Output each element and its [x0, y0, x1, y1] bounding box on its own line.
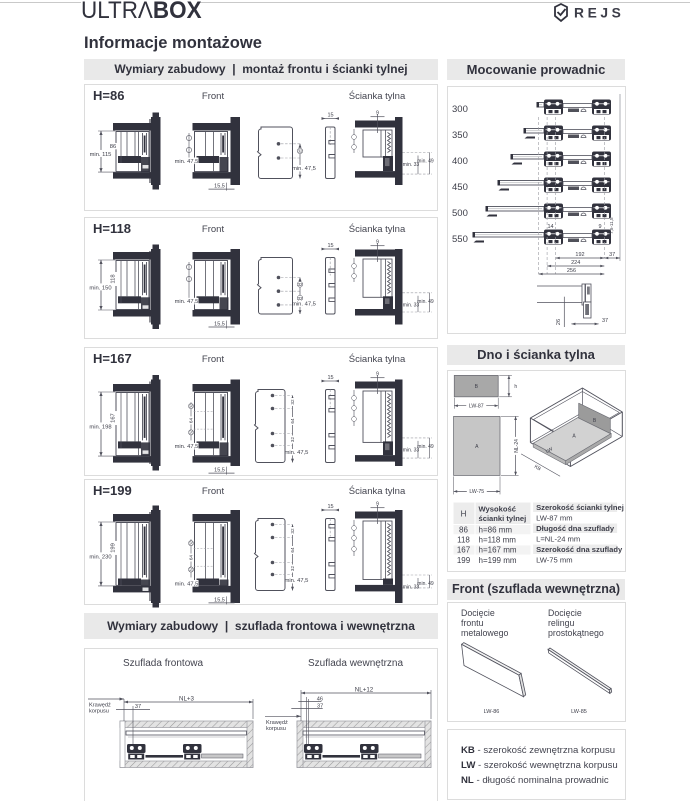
svg-text:37: 37	[609, 252, 615, 258]
svg-text:h: h	[514, 384, 517, 390]
svg-text:h=167 mm: h=167 mm	[479, 546, 517, 555]
svg-text:min. 33: min. 33	[403, 162, 420, 168]
svg-text:64: 64	[189, 418, 194, 424]
svg-text:min. 47,5: min. 47,5	[285, 578, 309, 584]
svg-text:37: 37	[602, 318, 608, 324]
svg-text:199: 199	[111, 543, 117, 553]
svg-text:15,5: 15,5	[214, 468, 225, 474]
svg-text:167: 167	[111, 413, 117, 423]
svg-text:15: 15	[327, 375, 333, 381]
svg-text:korpusu: korpusu	[89, 709, 109, 715]
svg-text:32: 32	[189, 567, 194, 572]
svg-text:9: 9	[376, 502, 379, 508]
svg-text:Szerokość ścianki tylnej: Szerokość ścianki tylnej	[536, 503, 624, 512]
svg-text:Wysokość: Wysokość	[479, 505, 516, 514]
svg-text:min. 47,5: min. 47,5	[175, 444, 199, 450]
svg-text:min. 150: min. 150	[89, 285, 111, 291]
svg-text:min. 115: min. 115	[90, 152, 112, 158]
svg-text:64: 64	[290, 547, 295, 553]
svg-text:LW-86: LW-86	[484, 709, 500, 715]
svg-text:min. 47,5: min. 47,5	[175, 581, 199, 587]
svg-text:NL-24: NL-24	[514, 439, 520, 453]
svg-text:118: 118	[457, 536, 470, 545]
svg-text:LW-75: LW-75	[469, 489, 484, 495]
svg-text:350: 350	[452, 130, 468, 141]
svg-text:min. 33: min. 33	[403, 447, 420, 453]
svg-text:min. 230: min. 230	[89, 554, 111, 560]
svg-text:64: 64	[290, 418, 295, 424]
svg-text:37: 37	[135, 704, 141, 710]
svg-text:32: 32	[189, 403, 194, 408]
svg-text:min. 47,5: min. 47,5	[175, 159, 199, 165]
svg-text:86: 86	[459, 525, 468, 534]
svg-text:min. 49: min. 49	[417, 159, 434, 165]
svg-text:min. 33: min. 33	[403, 585, 420, 591]
svg-text:min. 47,5: min. 47,5	[292, 166, 316, 172]
svg-text:300: 300	[452, 104, 468, 115]
svg-text:min. 49: min. 49	[417, 581, 434, 587]
svg-text:64: 64	[189, 555, 194, 561]
svg-text:32: 32	[189, 429, 194, 434]
svg-text:Długość dna szuflady: Długość dna szuflady	[536, 524, 615, 533]
svg-text:L=NL-24 mm: L=NL-24 mm	[536, 535, 580, 544]
svg-text:37: 37	[317, 703, 323, 709]
svg-text:15,5: 15,5	[214, 184, 225, 190]
svg-text:32: 32	[189, 540, 194, 545]
svg-text:7,5-11,5: 7,5-11,5	[609, 217, 614, 234]
svg-text:224: 224	[571, 260, 580, 266]
svg-text:H: H	[461, 510, 467, 519]
svg-text:9: 9	[376, 240, 379, 246]
svg-text:32: 32	[297, 149, 303, 154]
svg-text:min. 198: min. 198	[89, 424, 111, 430]
svg-text:LW-87 mm: LW-87 mm	[536, 514, 572, 523]
svg-text:32: 32	[290, 437, 295, 443]
svg-text:15: 15	[327, 243, 333, 249]
svg-text:h=118 mm: h=118 mm	[479, 536, 517, 545]
svg-text:h=86 mm: h=86 mm	[479, 525, 513, 534]
svg-text:32: 32	[290, 566, 295, 572]
svg-text:32: 32	[290, 528, 295, 534]
svg-text:9: 9	[376, 111, 379, 117]
svg-text:14: 14	[547, 224, 553, 230]
svg-text:h=199 mm: h=199 mm	[479, 556, 517, 565]
svg-text:550: 550	[452, 234, 468, 245]
svg-text:192: 192	[575, 252, 584, 258]
svg-text:korpusu: korpusu	[266, 726, 286, 732]
svg-text:15: 15	[327, 113, 333, 119]
svg-text:min. 49: min. 49	[417, 299, 434, 305]
svg-text:min. 33: min. 33	[403, 302, 420, 308]
svg-text:NL+12: NL+12	[355, 687, 374, 694]
svg-text:86: 86	[110, 144, 116, 150]
svg-text:min. 47,5: min. 47,5	[175, 299, 199, 305]
svg-text:26: 26	[556, 319, 562, 325]
svg-text:15,5: 15,5	[214, 322, 225, 328]
svg-text:ścianki tylnej: ścianki tylnej	[479, 514, 527, 523]
svg-text:199: 199	[457, 556, 471, 565]
svg-text:NL+3: NL+3	[179, 696, 195, 703]
svg-text:LW-75 mm: LW-75 mm	[536, 556, 572, 565]
svg-text:32: 32	[290, 399, 295, 405]
svg-text:15,5: 15,5	[214, 597, 225, 603]
svg-text:167: 167	[457, 546, 471, 555]
svg-text:min. 49: min. 49	[417, 444, 434, 450]
svg-text:32: 32	[297, 296, 303, 301]
svg-text:min. 47,5: min. 47,5	[285, 450, 309, 456]
svg-text:9: 9	[376, 372, 379, 378]
svg-text:450: 450	[452, 182, 468, 193]
svg-text:LW-85: LW-85	[571, 709, 587, 715]
svg-text:46: 46	[317, 696, 323, 702]
svg-text:LW-87: LW-87	[469, 404, 484, 410]
svg-text:9: 9	[598, 224, 601, 230]
svg-text:32: 32	[297, 282, 303, 287]
svg-text:118: 118	[111, 274, 117, 283]
svg-text:400: 400	[452, 156, 468, 167]
svg-text:500: 500	[452, 208, 468, 219]
svg-text:REJS: REJS	[574, 6, 624, 21]
svg-text:256: 256	[567, 268, 576, 274]
svg-text:Szerokość dna szuflady: Szerokość dna szuflady	[536, 545, 623, 554]
svg-text:min. 47,5: min. 47,5	[292, 302, 316, 308]
svg-text:15: 15	[327, 504, 333, 510]
